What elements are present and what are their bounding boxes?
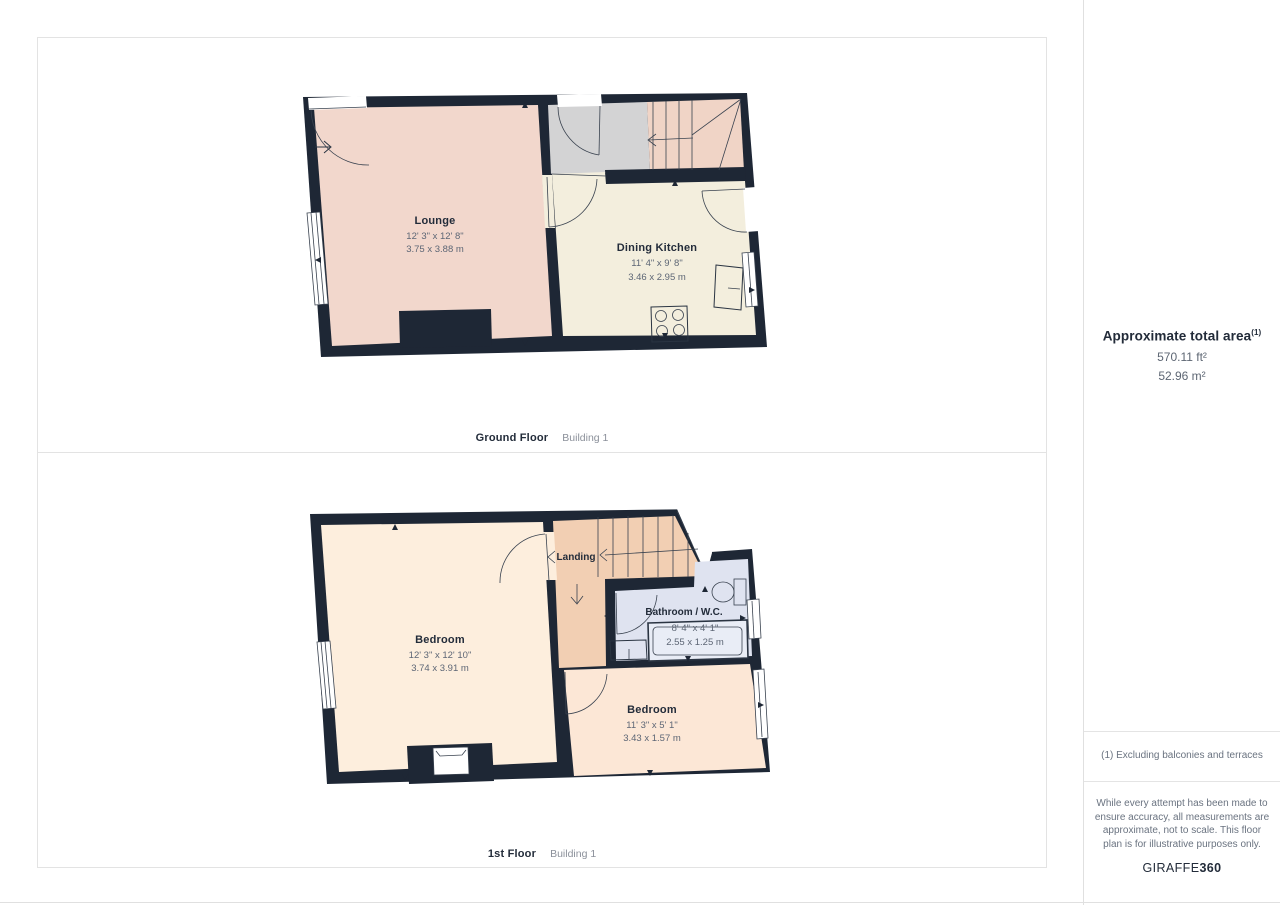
floor-section-divider	[37, 452, 1047, 453]
room-dimensions-metric: 3.46 x 2.95 m	[628, 272, 686, 283]
room-dimensions-imperial: 11' 3" x 5' 1"	[626, 720, 677, 731]
floor-name: Ground Floor	[476, 432, 549, 444]
room-name: Bathroom / W.C.	[645, 607, 722, 618]
hall-door-gap	[557, 94, 602, 107]
total-area-title: Approximate total area(1)	[1084, 328, 1280, 344]
room-name: Landing	[557, 552, 596, 563]
brand-suffix: 360	[1199, 861, 1221, 875]
floorplan-page: Lounge 12' 3" x 12' 8" 3.75 x 3.88 m Din…	[0, 0, 1280, 905]
floor-name: 1st Floor	[488, 848, 536, 860]
ground-floor-caption: Ground FloorBuilding 1	[37, 432, 1047, 444]
footnote-marker: (1)	[1251, 328, 1261, 337]
total-area-block: Approximate total area(1) 570.11 ft² 52.…	[1084, 328, 1280, 382]
room-name: Bedroom	[415, 634, 465, 646]
room-dimensions-imperial: 12' 3" x 12' 10"	[409, 650, 472, 661]
room-dimensions-imperial: 12' 3" x 12' 8"	[406, 231, 463, 242]
room-name: Lounge	[415, 215, 456, 227]
room-dimensions-metric: 2.55 x 1.25 m	[666, 637, 724, 648]
first-floor-plan: Bedroom 12' 3" x 12' 10" 3.74 x 3.91 m L…	[300, 500, 780, 800]
room-dimensions-imperial: 11' 4" x 9' 8"	[631, 258, 682, 269]
fireplace	[433, 747, 469, 775]
building-name: Building 1	[550, 848, 596, 860]
brand-name: GIRAFFE	[1142, 861, 1199, 875]
room-dimensions-metric: 3.74 x 3.91 m	[411, 663, 469, 674]
room-dimensions-imperial: 8' 4" x 4' 1"	[672, 623, 719, 634]
sidebar-divider	[1083, 0, 1084, 905]
building-name: Building 1	[562, 432, 608, 444]
page-bottom-rule	[0, 902, 1280, 903]
total-area-metric: 52.96 m²	[1084, 370, 1280, 382]
total-area-imperial: 570.11 ft²	[1084, 351, 1280, 363]
footnote-divider-top	[1084, 731, 1280, 732]
ground-floor-structure	[303, 93, 767, 357]
first-floor-caption: 1st FloorBuilding 1	[37, 848, 1047, 860]
room-dimensions-metric: 3.43 x 1.57 m	[623, 733, 681, 744]
kitchen-floor	[552, 172, 756, 336]
room-dimensions-metric: 3.75 x 3.88 m	[406, 244, 464, 255]
giraffe360-logo: GIRAFFE360	[1084, 861, 1280, 875]
ground-floor-plan: Lounge 12' 3" x 12' 8" 3.75 x 3.88 m Din…	[295, 85, 775, 370]
room-name: Bedroom	[627, 704, 677, 716]
disclaimer-text: While every attempt has been made to ens…	[1094, 797, 1270, 851]
room-name: Dining Kitchen	[617, 242, 697, 254]
footnote-divider-bottom	[1084, 781, 1280, 782]
area-footnote: (1) Excluding balconies and terraces	[1084, 750, 1280, 761]
bedroom-main-floor	[321, 522, 557, 772]
chimney-breast	[399, 309, 492, 348]
